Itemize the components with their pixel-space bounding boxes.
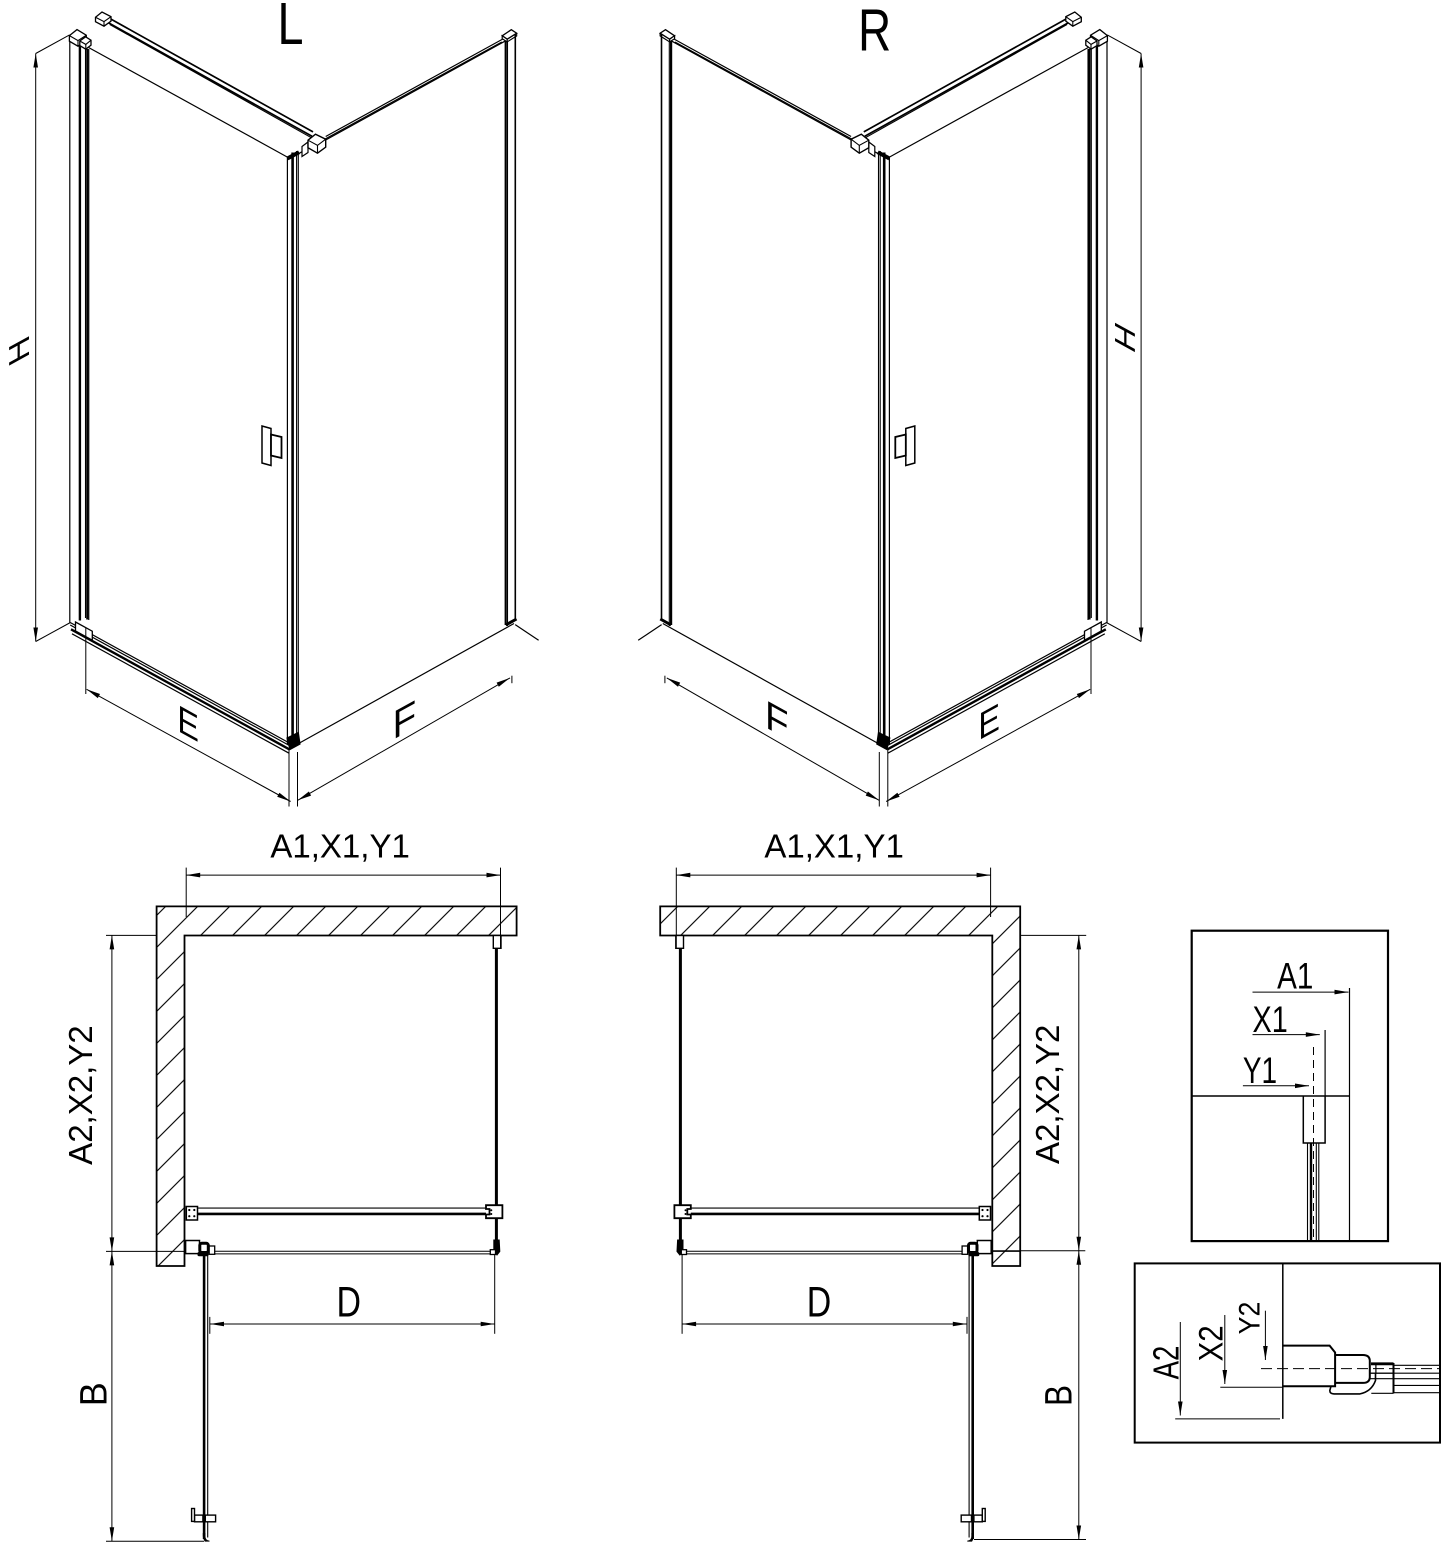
svg-text:A2,X2,Y2: A2,X2,Y2	[62, 1025, 99, 1164]
svg-text:A1,X1,Y1: A1,X1,Y1	[270, 828, 409, 865]
svg-text:A2: A2	[1146, 1346, 1187, 1380]
svg-text:B: B	[74, 1382, 116, 1406]
svg-text:R: R	[858, 0, 891, 63]
svg-text:A1: A1	[1277, 955, 1313, 996]
svg-text:L: L	[278, 0, 304, 57]
svg-text:D: D	[807, 1279, 832, 1327]
svg-text:Y1: Y1	[1243, 1050, 1277, 1091]
svg-text:X1: X1	[1253, 999, 1288, 1040]
svg-text:Y2: Y2	[1234, 1302, 1267, 1335]
svg-text:D: D	[336, 1279, 361, 1327]
svg-text:B: B	[1039, 1385, 1081, 1406]
svg-text:A2,X2,Y2: A2,X2,Y2	[1029, 1025, 1066, 1164]
svg-text:X2: X2	[1193, 1325, 1231, 1361]
svg-text:A1,X1,Y1: A1,X1,Y1	[764, 828, 903, 865]
